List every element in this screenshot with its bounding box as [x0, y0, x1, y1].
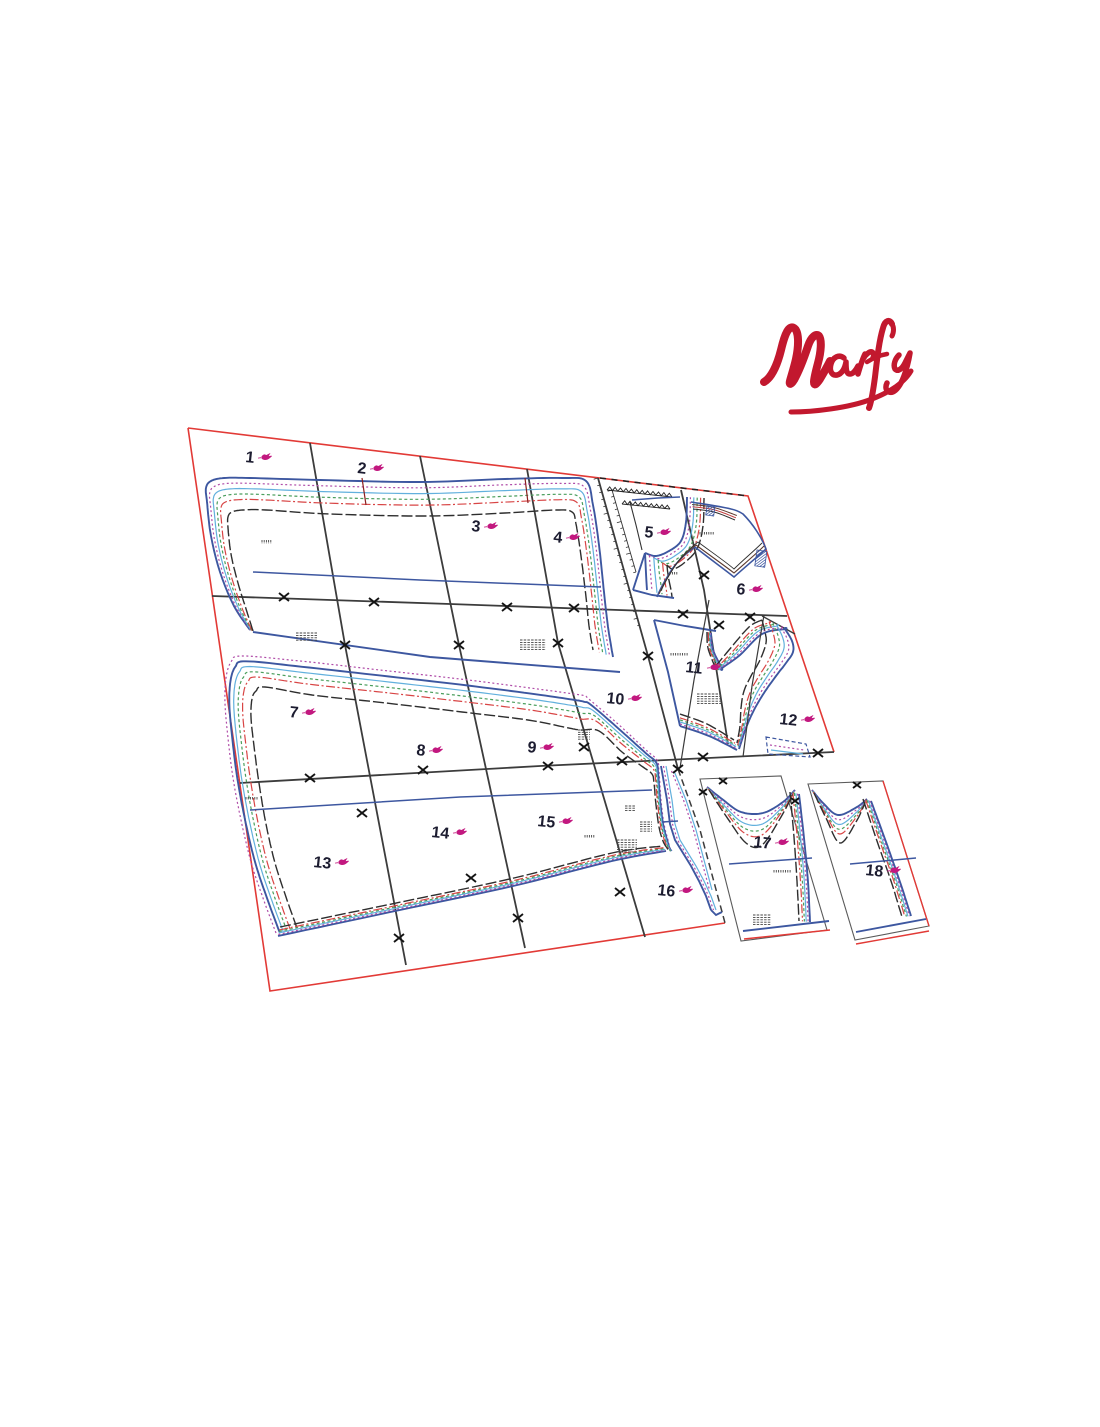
svg-text:9: 9	[527, 739, 538, 757]
svg-text:14: 14	[431, 824, 451, 843]
svg-text:16: 16	[657, 882, 677, 901]
svg-text:6: 6	[736, 581, 747, 599]
svg-text:7: 7	[289, 704, 300, 722]
svg-text:5: 5	[644, 524, 655, 542]
svg-text:10: 10	[606, 690, 626, 709]
svg-text:8: 8	[416, 742, 427, 760]
svg-text:11: 11	[685, 659, 704, 678]
svg-text:15: 15	[537, 813, 557, 832]
svg-text:4: 4	[553, 529, 564, 547]
svg-text:2: 2	[357, 460, 368, 478]
svg-text:1: 1	[245, 449, 256, 467]
svg-text:3: 3	[471, 518, 482, 536]
svg-text:12: 12	[779, 711, 799, 730]
svg-text:18: 18	[865, 862, 885, 881]
svg-text:17: 17	[753, 834, 773, 853]
svg-text:13: 13	[313, 854, 333, 873]
